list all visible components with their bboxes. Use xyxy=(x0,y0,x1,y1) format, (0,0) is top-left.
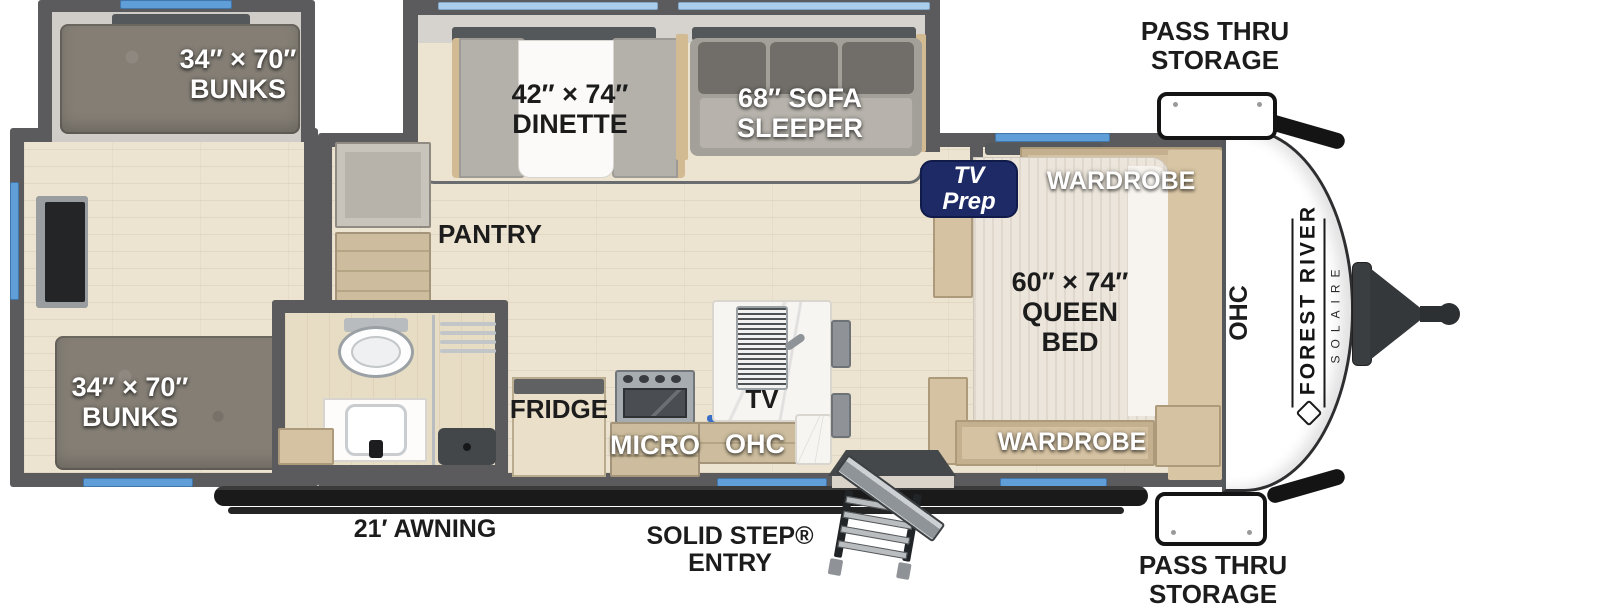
sofa-line1: 68″ SOFA xyxy=(738,84,862,114)
micro-name: MICRO xyxy=(610,431,700,461)
pantry-cabinet-upper xyxy=(335,142,431,228)
ohc-kitchen-label: OHC xyxy=(700,430,810,460)
tv-prep-line2: Prep xyxy=(942,189,995,215)
ohc-kitchen-name: OHC xyxy=(725,430,785,460)
bathroom-faucet xyxy=(369,440,383,458)
pantry-label: PANTRY xyxy=(430,218,550,250)
sofa-line2: SLEEPER xyxy=(737,114,863,144)
stove-oven-window xyxy=(623,388,687,418)
dinette-name: DINETTE xyxy=(512,110,628,140)
solid-step-line1: SOLID STEP® xyxy=(646,523,813,551)
sofa-wood-trim-left xyxy=(676,34,688,160)
ohc-front-name: OHC xyxy=(1226,285,1254,341)
wardrobe-top-name: WARDROBE xyxy=(1047,168,1196,196)
ohc-front-label: OHC xyxy=(1209,287,1271,339)
forest-river-logo-icon xyxy=(1295,399,1322,426)
shower-rail-4 xyxy=(440,349,496,353)
pantry-name: PANTRY xyxy=(438,220,542,249)
tv-island-name: TV xyxy=(745,385,778,414)
toilet-seat xyxy=(351,336,401,368)
bunk-room-tv-screen xyxy=(45,202,85,302)
dinette-label: 42″ × 74″ DINETTE xyxy=(495,78,645,142)
awning-text: 21′ AWNING xyxy=(354,516,497,544)
tv-prep-line1: TV xyxy=(954,163,985,189)
solid-step-line2: ENTRY xyxy=(688,550,772,578)
pass-thru-top-label: PASS THRU STORAGE xyxy=(1130,14,1300,78)
awning-support-bar xyxy=(228,507,1124,514)
stove-burner-4 xyxy=(671,375,681,383)
shower-rail-3 xyxy=(440,340,496,344)
sofa-label: 68″ SOFA SLEEPER xyxy=(725,80,875,148)
step-foot-right xyxy=(896,562,912,580)
bunk-bottom-name: BUNKS xyxy=(82,403,178,433)
fridge-name: FRIDGE xyxy=(510,395,608,424)
bunk-top-label: 34″ × 70″ BUNKS xyxy=(152,42,324,108)
screw-icon xyxy=(1247,530,1252,535)
brand-rule-bottom xyxy=(1324,219,1326,408)
brand-model: SOLAIRE xyxy=(1329,262,1343,363)
stove xyxy=(615,370,695,424)
bunk-top-size: 34″ × 70″ xyxy=(180,45,297,75)
shower-rail-2 xyxy=(440,331,496,335)
tv-island-label: TV xyxy=(726,384,798,414)
stove-burner-3 xyxy=(655,375,665,383)
stove-burner-2 xyxy=(639,375,649,383)
brand-rule-top xyxy=(1292,219,1294,408)
island-stool-1 xyxy=(831,320,851,368)
screw-icon xyxy=(1171,530,1176,535)
brand-name: FOREST RIVER xyxy=(1297,204,1321,395)
bunk-top-name: BUNKS xyxy=(190,75,286,105)
brand-lockup: FOREST RIVER SOLAIRE xyxy=(1285,211,1347,416)
bedroom-top-window xyxy=(995,133,1110,142)
queen-bed-line2: QUEEN xyxy=(1022,298,1118,328)
wardrobe-bottom-label: WARDROBE xyxy=(977,427,1167,459)
island-sink-cover xyxy=(736,306,788,390)
pass-thru-top-line2: STORAGE xyxy=(1151,46,1279,75)
island-stool-2 xyxy=(831,393,851,438)
hitch-jack xyxy=(1352,262,1372,366)
awning-roller-bar xyxy=(214,486,1148,506)
step-tread-4 xyxy=(837,540,907,559)
bunk-room-left-window xyxy=(10,182,19,300)
screw-icon xyxy=(1257,102,1262,107)
bunk-bottom-size: 34″ × 70″ xyxy=(72,373,189,403)
dinette-size: 42″ × 74″ xyxy=(512,80,629,110)
pass-thru-top-line1: PASS THRU xyxy=(1141,17,1289,46)
queen-bed-size: 60″ × 74″ xyxy=(1012,268,1129,298)
bunk-room-tv xyxy=(36,196,88,308)
queen-bed-line3: BED xyxy=(1041,328,1098,358)
shower-drain xyxy=(463,443,471,451)
sofa-top-window xyxy=(678,2,930,10)
dinette-top-window xyxy=(438,2,658,10)
wardrobe-top-label: WARDROBE xyxy=(1026,166,1216,198)
floorplan-diagram: 34″ × 70″ BUNKS 34″ × 70″ BUNKS 42″ × 74… xyxy=(0,0,1600,614)
bathroom-cabinet xyxy=(278,428,334,465)
pass-thru-door-bottom xyxy=(1155,492,1267,546)
stove-burner-1 xyxy=(623,375,633,383)
pass-thru-door-top xyxy=(1157,92,1277,140)
bunk-slideout-window xyxy=(120,0,232,9)
pass-thru-bottom-line2: STORAGE xyxy=(1149,580,1277,609)
solid-step-label: SOLID STEP® ENTRY xyxy=(638,518,822,582)
pass-thru-bottom-line1: PASS THRU xyxy=(1139,551,1287,580)
bunk-room-bottom-window xyxy=(83,478,193,487)
pass-thru-bottom-label: PASS THRU STORAGE xyxy=(1128,548,1298,612)
shower-rail-1 xyxy=(440,322,496,326)
wardrobe-bottom-name: WARDROBE xyxy=(998,429,1147,457)
queen-bed-label: 60″ × 74″ QUEEN BED xyxy=(975,258,1165,368)
bunk-bottom-label: 34″ × 70″ BUNKS xyxy=(40,370,220,436)
shower-glass-wall xyxy=(432,315,435,465)
step-foot-left xyxy=(828,558,844,576)
toilet-bowl xyxy=(338,326,414,378)
micro-label: MICRO xyxy=(599,430,711,462)
awning-label: 21′ AWNING xyxy=(340,514,510,546)
tv-prep-badge: TV Prep xyxy=(920,160,1018,218)
fridge-label: FRIDGE xyxy=(503,392,615,426)
screw-icon xyxy=(1173,102,1178,107)
shower-pan xyxy=(438,428,496,465)
hitch-coupler-ball xyxy=(1438,303,1460,325)
